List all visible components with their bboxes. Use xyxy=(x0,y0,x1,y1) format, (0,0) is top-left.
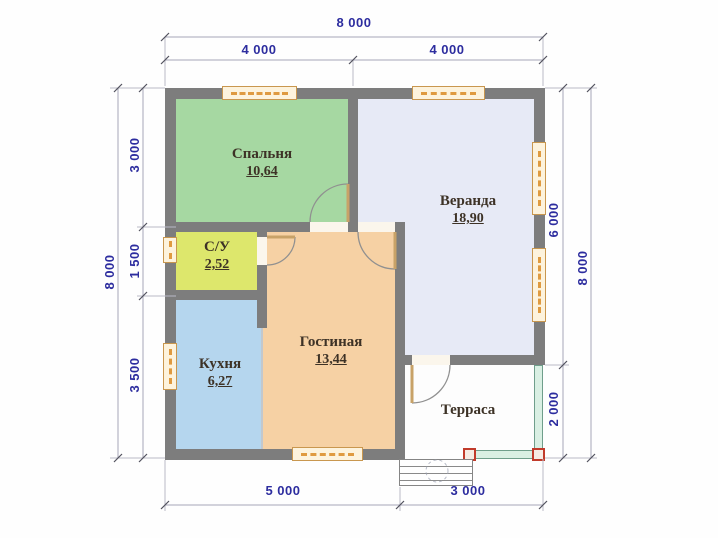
dim-top-right: 4 000 xyxy=(417,42,477,58)
room-name: Спальня xyxy=(192,146,332,163)
dim-top-total: 8 000 xyxy=(324,15,384,31)
room-area: 2,52 xyxy=(176,257,258,273)
label-living: Гостиная 13,44 xyxy=(261,334,401,368)
room-name: Гостиная xyxy=(261,334,401,351)
door-arc-bedroom xyxy=(310,184,348,222)
dim-bottom-left: 5 000 xyxy=(253,483,313,499)
label-terrace: Терраса xyxy=(398,402,538,419)
dim-right-total: 8 000 xyxy=(575,238,591,298)
room-area: 18,90 xyxy=(398,211,538,227)
extension-lines xyxy=(110,37,597,511)
dim-left-seg1: 3 000 xyxy=(127,125,143,185)
steps-column-marker xyxy=(426,460,448,482)
label-bathroom: С/У 2,52 xyxy=(176,239,258,273)
dim-right-seg2: 2 000 xyxy=(546,379,562,439)
door-arc-terrace xyxy=(412,365,450,403)
room-area: 6,27 xyxy=(150,374,290,390)
room-name: С/У xyxy=(176,239,258,256)
room-name: Терраса xyxy=(398,402,538,419)
room-area: 13,44 xyxy=(261,352,401,368)
room-area: 10,64 xyxy=(192,164,332,180)
dim-right-seg1: 6 000 xyxy=(546,190,562,250)
floor-plan-canvas: 8 000 4 000 4 000 8 000 3 000 1 500 3 50… xyxy=(0,0,718,538)
door-arc-bathroom xyxy=(267,237,295,265)
label-bedroom: Спальня 10,64 xyxy=(192,146,332,180)
room-name: Веранда xyxy=(398,193,538,210)
door-arc-veranda-living xyxy=(358,232,395,269)
dim-bottom-right: 3 000 xyxy=(438,483,498,499)
dim-left-seg3: 3 500 xyxy=(127,345,143,405)
label-veranda: Веранда 18,90 xyxy=(398,193,538,227)
dim-top-left: 4 000 xyxy=(229,42,289,58)
dim-left-total: 8 000 xyxy=(102,242,118,302)
dim-left-seg2: 1 500 xyxy=(127,231,143,291)
